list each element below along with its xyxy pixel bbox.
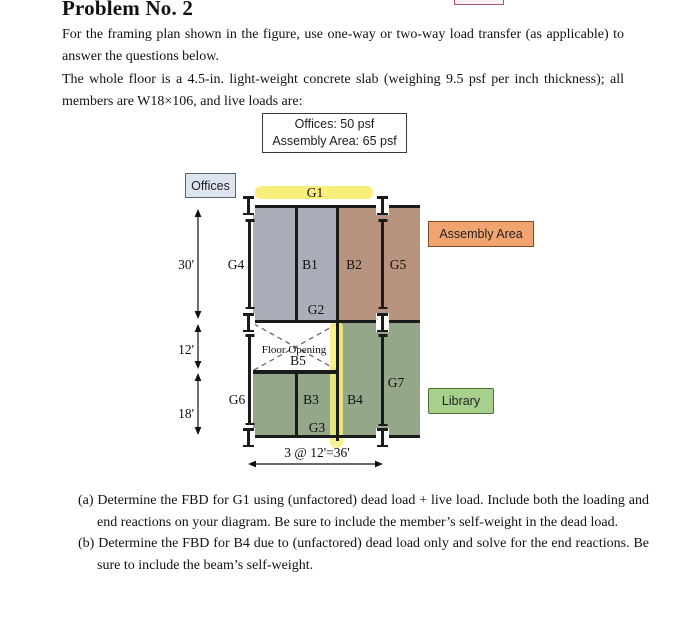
member-label-b2: B2	[346, 257, 362, 273]
girder-g5	[381, 220, 384, 308]
member-label-b5: B5	[290, 353, 306, 369]
load-assembly-line: Assembly Area: 65 psf	[272, 133, 396, 150]
page-title: Problem No. 2	[62, 0, 193, 21]
question-a: (a) Determine the FBD for G1 using (unfa…	[78, 490, 649, 533]
member-label-g1: G1	[307, 185, 324, 201]
library-area-label: Library	[428, 388, 494, 414]
offices-area-label-text: Offices	[191, 179, 230, 193]
question-a-text: Determine the FBD for G1 using (unfactor…	[94, 493, 649, 530]
column-symbol-icon	[242, 313, 255, 332]
member-label-g6: G6	[229, 392, 246, 408]
girder-g6	[248, 335, 251, 424]
member-label-g4: G4	[228, 257, 245, 273]
column-symbol-icon	[376, 313, 389, 332]
member-label-g3: G3	[309, 420, 326, 436]
slab-library-region-right	[338, 322, 420, 436]
girder-g7	[381, 335, 384, 425]
member-label-b4: B4	[347, 392, 363, 408]
member-label-g2: G2	[308, 302, 325, 318]
assembly-area-label-text: Assembly Area	[439, 227, 522, 241]
dim-label-bottom: 3 @ 12'=36'	[256, 445, 378, 461]
intro-paragraph-1: For the framing plan shown in the figure…	[62, 24, 624, 68]
member-label-g7: G7	[388, 375, 405, 391]
girder-g4	[248, 220, 251, 308]
question-b: (b) Determine the FBD for B4 due to (unf…	[78, 533, 649, 576]
red-box-fragment	[454, 0, 504, 5]
member-label-b1: B1	[302, 257, 318, 273]
column-symbol-icon	[376, 196, 389, 215]
beam-b1	[295, 208, 298, 320]
library-area-label-text: Library	[442, 394, 480, 408]
dim-label-18ft: 18'	[172, 406, 194, 422]
assembly-area-label: Assembly Area	[428, 221, 534, 247]
dim-label-30ft: 30'	[172, 257, 194, 273]
load-offices-line: Offices: 50 psf	[295, 116, 375, 133]
document-page: Problem No. 2 For the framing plan shown…	[0, 0, 700, 632]
intro-paragraph-2: The whole floor is a 4.5-in. light-weigh…	[62, 69, 624, 113]
member-label-g5: G5	[390, 257, 407, 273]
question-a-marker: (a)	[78, 493, 94, 508]
question-b-text: Determine the FBD for B4 due to (unfacto…	[94, 536, 649, 573]
beam-b5	[253, 370, 338, 374]
question-b-marker: (b)	[78, 536, 94, 551]
member-label-b3: B3	[303, 392, 319, 408]
beam-b4	[336, 323, 339, 441]
beam-b2	[336, 208, 339, 321]
column-symbol-icon	[242, 196, 255, 215]
column-symbol-icon	[242, 428, 255, 447]
live-load-box: Offices: 50 psf Assembly Area: 65 psf	[262, 113, 407, 153]
dim-label-12ft: 12'	[172, 342, 194, 358]
offices-area-label: Offices	[185, 173, 236, 198]
beam-b3	[295, 374, 298, 435]
